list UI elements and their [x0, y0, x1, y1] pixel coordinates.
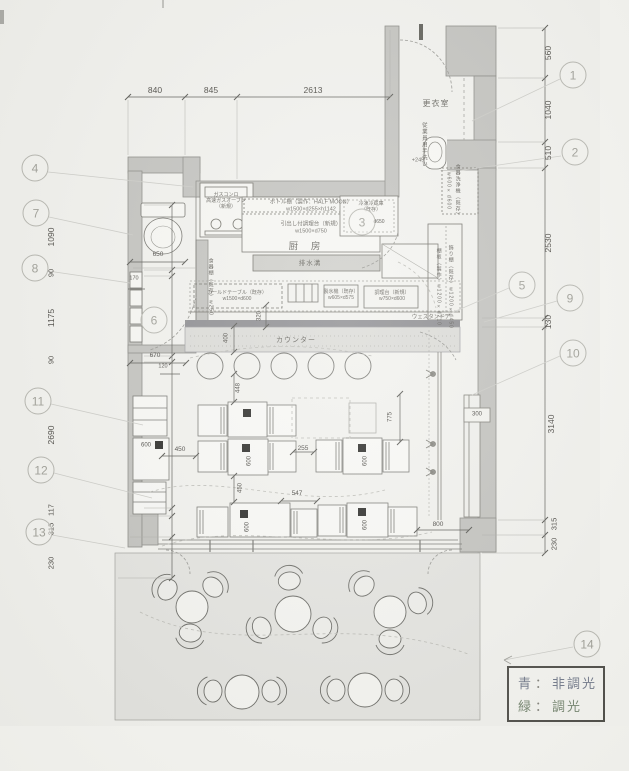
dim-label: 1090 [46, 228, 56, 247]
dim-label: 560 [543, 46, 553, 60]
downlight-square-icon [358, 444, 366, 452]
label-ice-machine: 製氷機（既存）w605×d575 [323, 289, 358, 301]
dim-label: 230 [47, 557, 56, 570]
callout-circle-4: 4 [22, 155, 49, 182]
dim-label: 90 [47, 356, 56, 364]
dim-label: 840 [148, 85, 162, 95]
label-cold-table: コールドテーブル（既存）w1500×d600 [207, 290, 267, 302]
dim-label: 547 [292, 490, 303, 498]
dim-label: 400 [223, 333, 230, 343]
callout-circle-5: 5 [509, 272, 536, 299]
dim-label: 448 [235, 383, 242, 393]
dim-label: 3140 [546, 415, 556, 434]
dim-label: 650 [153, 251, 164, 259]
dim-label: 600 [141, 442, 151, 449]
dim-label: 775 [387, 412, 394, 422]
dim-label: 1040 [543, 101, 553, 120]
dim-label: 600 [362, 520, 369, 530]
dim-label: 117 [47, 504, 56, 516]
dim-label: 800 [433, 521, 444, 529]
dim-label: 600 [362, 456, 369, 466]
label-bottle-shelf: ボトル棚（製作：HALF MOON）w1500×d255×h1142 [270, 199, 352, 212]
label-wall-shelf-b: 棚板（製作）w1200×d210 [435, 248, 440, 326]
dim-label: 600 [246, 456, 253, 466]
downlight-square-icon [155, 441, 163, 449]
label-gas-stove: ガスコンロ高速ガスオーブン（新規） [206, 192, 246, 210]
dim-label: 450 [175, 446, 186, 454]
callout-circle-11: 11 [25, 388, 52, 415]
callout-circle-3: 3 [349, 209, 376, 236]
dim-label: 170 [129, 276, 138, 283]
callout-circle-12: 12 [28, 457, 55, 484]
callout-circle-2: 2 [562, 139, 589, 166]
label-drain: 排水溝 [299, 260, 322, 268]
label-kitchen: 厨 房 [289, 241, 326, 252]
dim-label: 1175 [46, 309, 56, 327]
callout-circle-14: 14 [574, 631, 601, 658]
label-dishwasher-name: 食器洗浄機（既存） [454, 164, 459, 218]
label-dishwasher-size: w600×d600 [445, 172, 450, 210]
label-wall-shelf-a: 飾り棚（既存）w1200×d450 [447, 245, 452, 329]
dim-label: 670 [150, 352, 161, 360]
downlight-square-icon [358, 508, 366, 516]
dim-label: 2690 [46, 426, 56, 445]
lighting-legend: 青 ： 非調光 緑 ： 調光 [507, 666, 605, 722]
callout-circle-10: 10 [560, 340, 587, 367]
label-counter: カウンター [276, 337, 316, 345]
callout-circle-13: 13 [26, 519, 53, 546]
dim-label: 2530 [543, 234, 553, 253]
label-employee-sink: 従業員用手洗い [420, 122, 426, 168]
dim-label: 300 [472, 411, 482, 418]
label-prep-table: 調理台（新規）w750×d600 [374, 290, 409, 302]
label-western-door: ウェスタンドア [412, 315, 451, 322]
dim-label: 450 [237, 483, 244, 493]
dim-label: 230 [550, 538, 559, 551]
dim-label: 315 [550, 518, 559, 531]
legend-value-blue: 非調光 [552, 673, 597, 692]
label-prep-drawer: 引出し付調理台（新規）w1500×d750 [281, 221, 342, 234]
legend-key-green: 緑 [518, 696, 533, 715]
legend-key-blue: 青 [518, 673, 533, 692]
legend-separator: ： [535, 673, 550, 692]
legend-separator: ： [535, 696, 550, 715]
floor-plan-sheet: 8408452613560104051025301303140315230109… [0, 0, 629, 771]
callout-circle-8: 8 [22, 255, 49, 282]
downlight-square-icon [240, 510, 248, 518]
legend-row-green: 緑 ： 調光 [518, 696, 603, 715]
dim-label: 600 [244, 522, 251, 532]
callout-circle-6: 6 [141, 307, 168, 334]
callout-circle-1: 1 [560, 62, 587, 89]
downlight-square-icon [243, 409, 251, 417]
annotation-layer: 8408452613560104051025301303140315230109… [0, 0, 629, 771]
dim-label: 2613 [304, 85, 323, 95]
dim-label: 845 [204, 85, 218, 95]
label-changing-room: 更衣室 [423, 99, 450, 109]
legend-row-blue: 青 ： 非調光 [518, 673, 603, 692]
dim-label: 130 [543, 315, 553, 329]
dim-label: 120 [158, 364, 167, 371]
dim-label: 510 [543, 146, 553, 160]
dim-label: 255 [298, 445, 309, 453]
callout-circle-9: 9 [557, 285, 584, 312]
legend-value-green: 調光 [552, 696, 582, 715]
dim-label: 320 [256, 311, 263, 321]
callout-circle-7: 7 [23, 200, 50, 227]
downlight-square-icon [242, 444, 250, 452]
label-toilet-shelf: 食器棚（既存）w250 [207, 258, 212, 316]
